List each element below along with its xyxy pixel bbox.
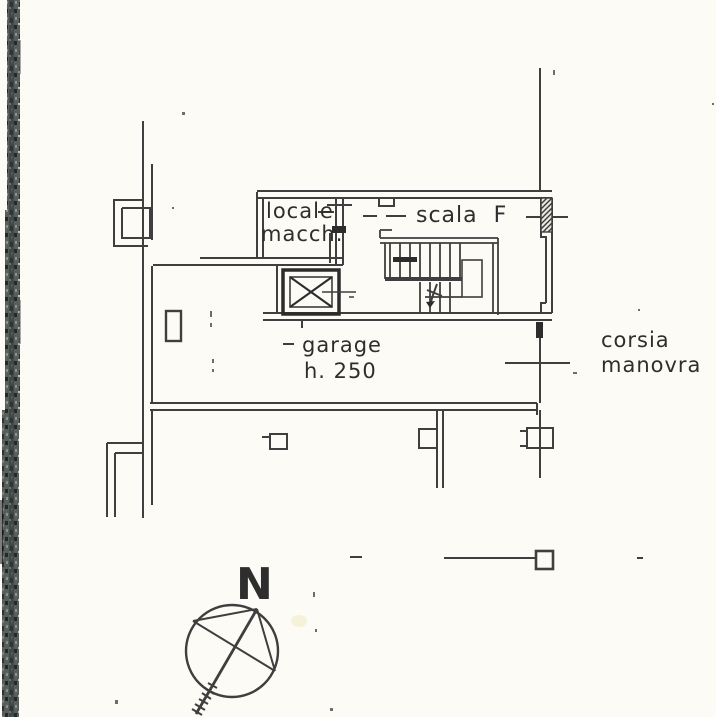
hatched-wall-segment xyxy=(541,198,552,232)
machine-room-label-line1: locale xyxy=(266,199,334,223)
driveway-label-line1: corsia xyxy=(601,328,670,352)
staircase-label: scala F xyxy=(416,203,507,228)
garage-height-label: h. 250 xyxy=(304,359,377,383)
driveway-label-line2: manovra xyxy=(601,353,701,377)
machine-room-label-line2: macch. xyxy=(261,222,343,246)
floor-plan-drawing: N locale macch. scala F garage h. 250 co… xyxy=(0,0,716,717)
scanned-floor-plan: N locale macch. scala F garage h. 250 co… xyxy=(0,0,716,717)
stair-break-bar xyxy=(393,257,417,262)
paper-smudge xyxy=(291,615,307,627)
stair-landing-divider xyxy=(385,277,462,281)
garage-label: garage xyxy=(302,333,382,357)
compass-north-label: N xyxy=(236,559,273,610)
